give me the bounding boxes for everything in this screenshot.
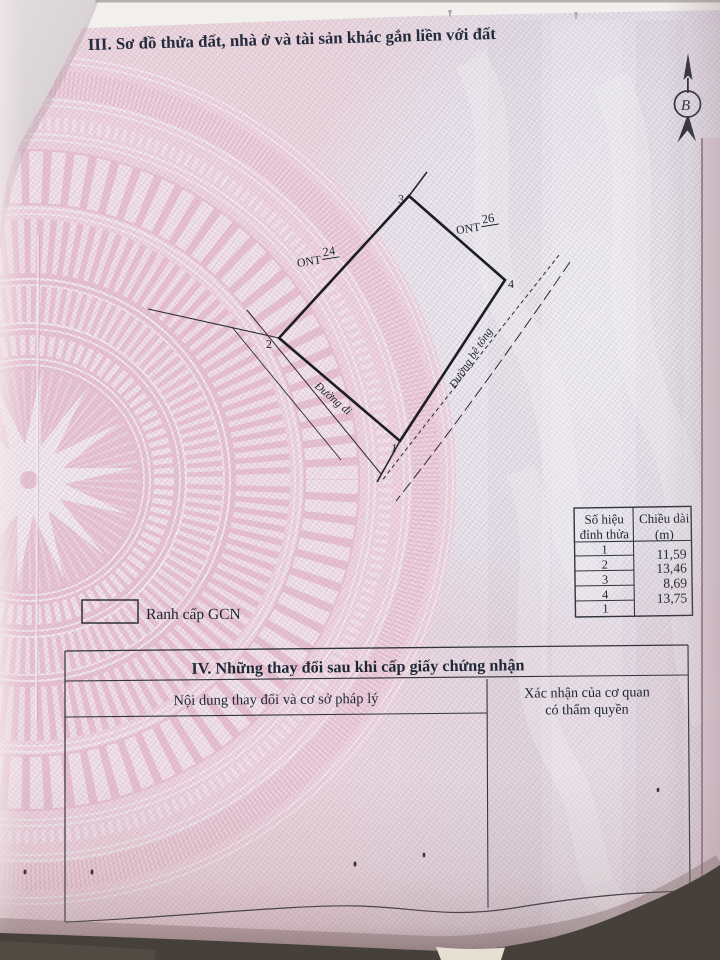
svg-text:4: 4 [508,277,514,291]
svg-text:Xác nhận của cơ quan: Xác nhận của cơ quan [524,684,650,701]
svg-text:IV. Những thay đổi sau khi cấp: IV. Những thay đổi sau khi cấp giấy chứn… [191,656,524,677]
svg-text:26: 26 [481,211,496,227]
svg-text:Ranh cấp GCN: Ranh cấp GCN [146,606,241,623]
svg-text:4: 4 [602,588,609,602]
svg-text:1: 1 [602,602,608,616]
svg-text:1: 1 [391,441,397,455]
svg-text:3: 3 [602,573,608,587]
svg-text:2: 2 [602,558,608,572]
svg-text:1: 1 [601,543,607,557]
svg-text:Nội dung thay đổi và cơ sở phá: Nội dung thay đổi và cơ sở pháp lý [173,691,379,709]
svg-text:đỉnh thửa: đỉnh thửa [580,526,630,542]
svg-text:Số hiệu: Số hiệu [584,511,624,527]
svg-text:có thẩm quyền: có thẩm quyền [545,702,629,719]
svg-text:3: 3 [398,192,404,206]
